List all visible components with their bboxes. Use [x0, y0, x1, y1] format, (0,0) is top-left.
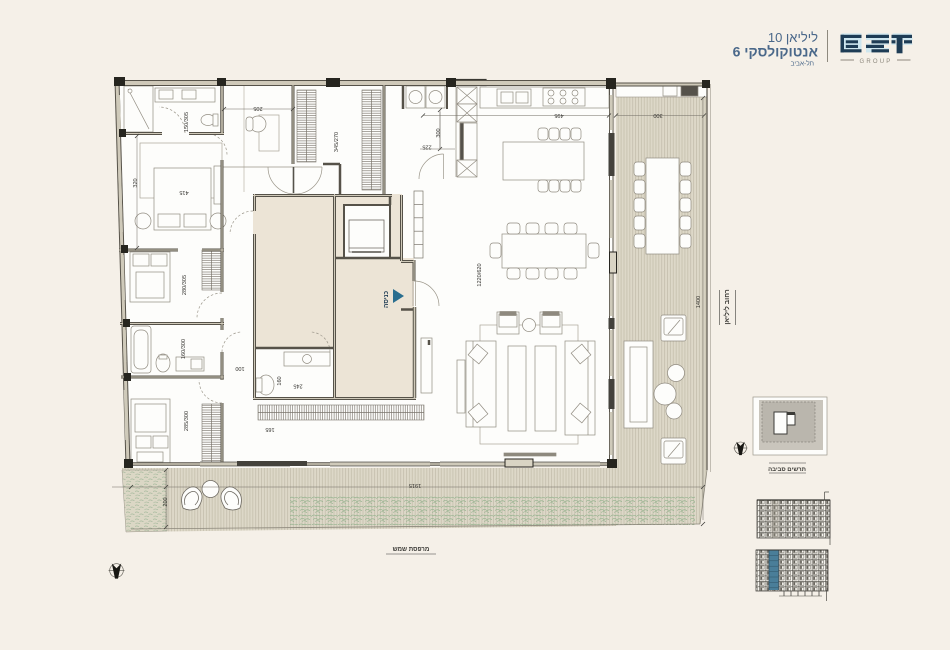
svg-text:150/305: 150/305	[184, 112, 190, 132]
svg-text:300: 300	[436, 128, 442, 137]
svg-text:245: 245	[293, 383, 302, 389]
svg-text:מרפסת שמש: מרפסת שמש	[393, 546, 430, 553]
svg-text:160/300: 160/300	[181, 339, 187, 359]
svg-text:280/305: 280/305	[182, 275, 188, 295]
svg-text:1915: 1915	[409, 482, 421, 488]
svg-text:495: 495	[554, 112, 563, 118]
svg-text:אנטוקולסקי 6: אנטוקולסקי 6	[733, 44, 819, 60]
svg-text:225: 225	[422, 144, 431, 150]
svg-text:רחוב ליליאן: רחוב ליליאן	[723, 289, 731, 324]
svg-text:285/300: 285/300	[184, 411, 190, 431]
svg-text:כניסה: כניסה	[383, 290, 390, 308]
svg-text:205: 205	[253, 105, 262, 111]
svg-text:345/270: 345/270	[334, 132, 340, 152]
svg-text:1220/620: 1220/620	[477, 263, 483, 286]
svg-text:GROUP: GROUP	[859, 59, 892, 65]
svg-text:100: 100	[235, 365, 244, 371]
svg-text:200: 200	[163, 497, 169, 506]
svg-text:415: 415	[179, 189, 188, 195]
svg-text:תל-אביב: תל-אביב	[791, 60, 814, 68]
svg-text:160: 160	[277, 376, 283, 385]
svg-text:300: 300	[653, 112, 662, 118]
svg-text:1400: 1400	[696, 296, 702, 308]
svg-text:165: 165	[265, 426, 274, 432]
svg-text:תרשים סביבה: תרשים סביבה	[768, 467, 806, 473]
svg-text:320: 320	[133, 178, 139, 187]
